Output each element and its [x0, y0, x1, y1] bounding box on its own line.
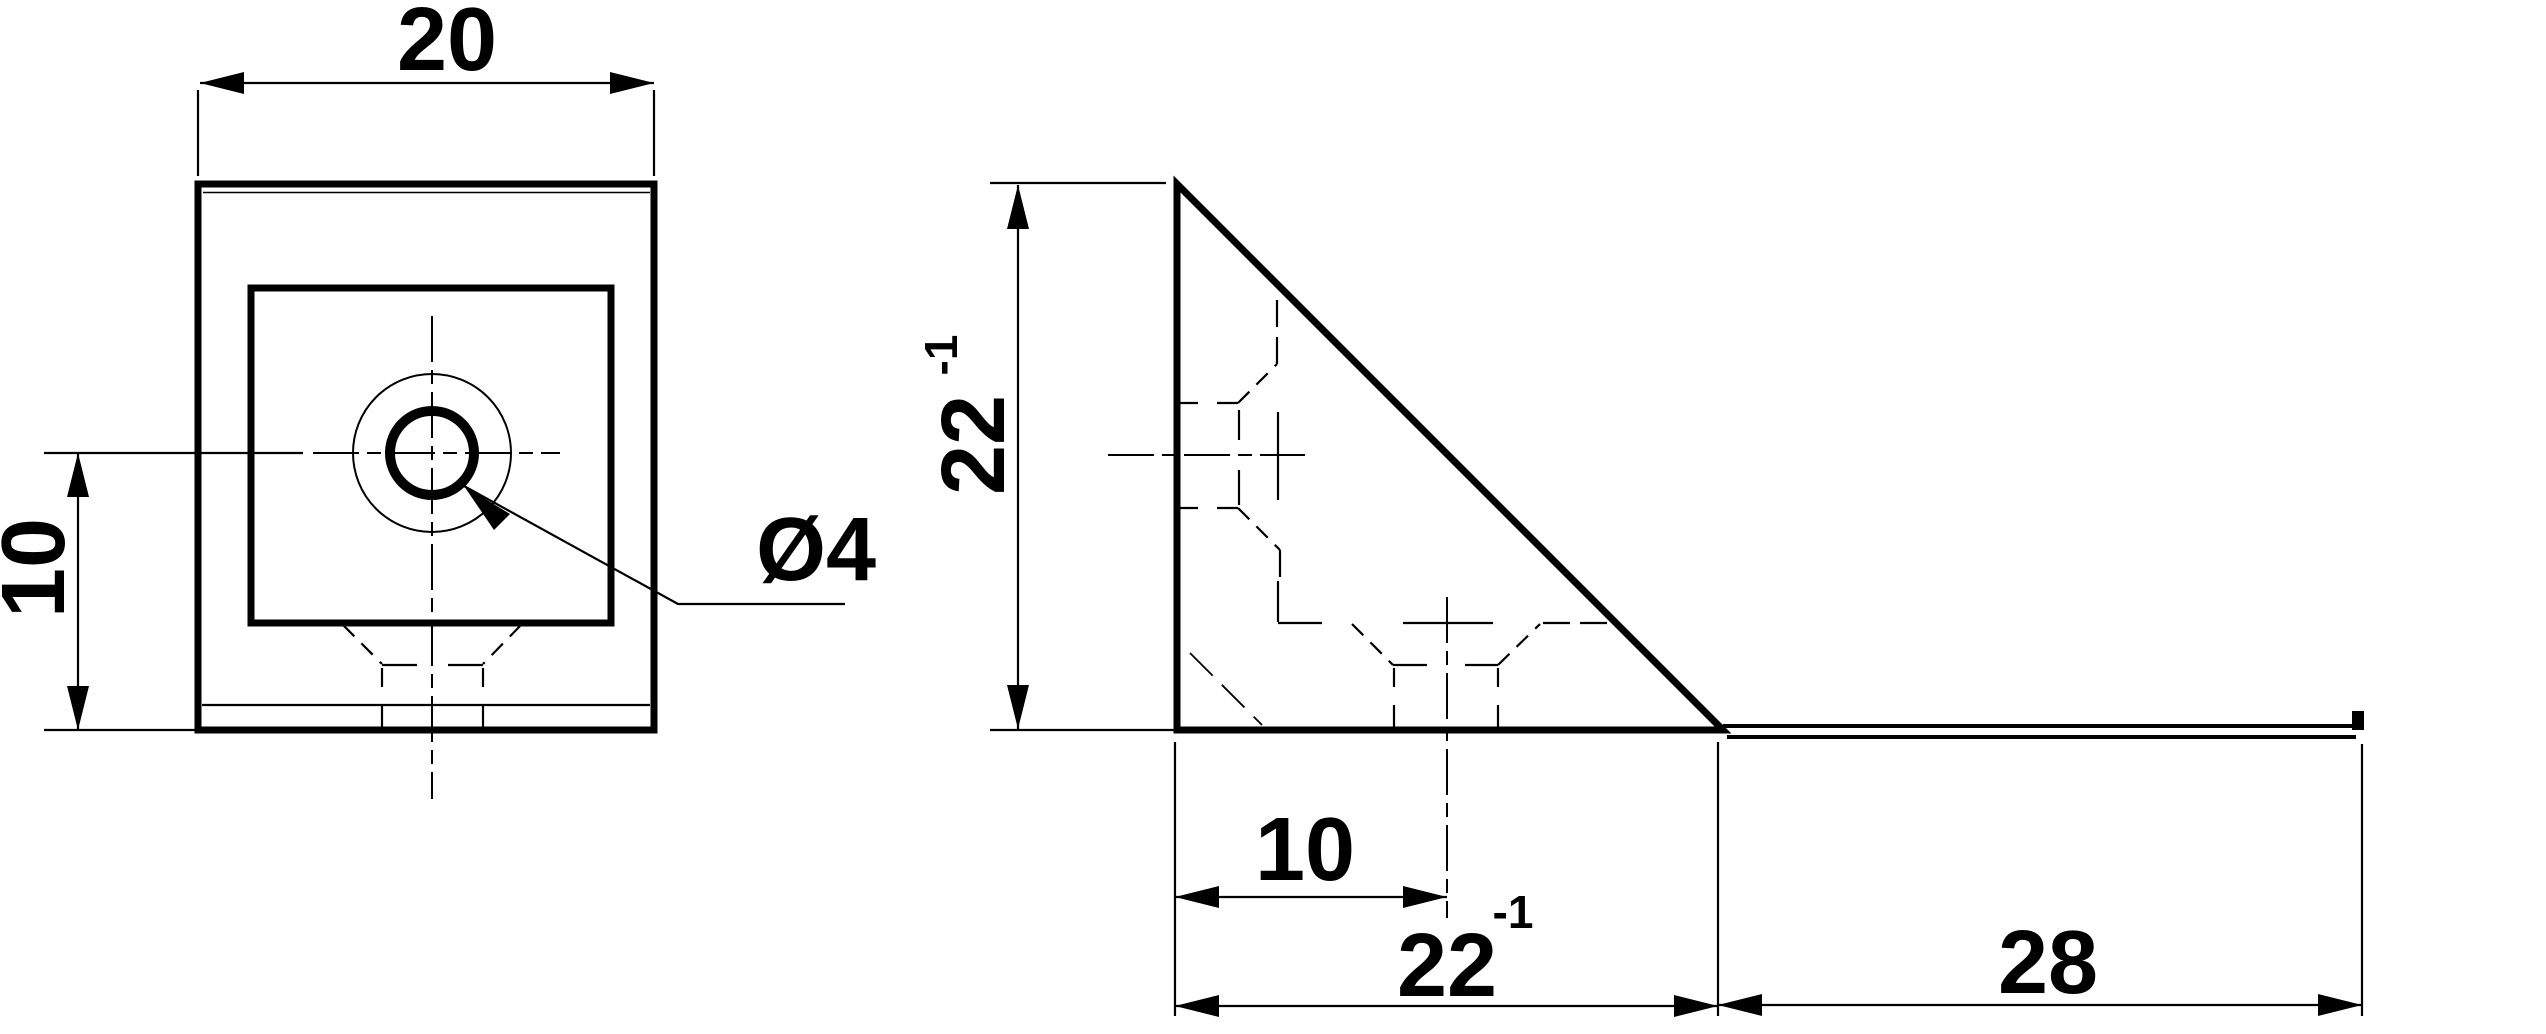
dimension-text-base: 22 [1397, 916, 1497, 1016]
hidden-diag [1238, 364, 1277, 403]
hidden-diag [1238, 508, 1280, 550]
arrowhead-down [67, 686, 89, 730]
dimension-text-base-superscript: -1 [1493, 886, 1534, 938]
arrowhead-left [1175, 886, 1219, 908]
dimension-text-width: 20 [397, 0, 497, 90]
front-hole-offset-dimension: 10 [0, 453, 303, 730]
side-view: 22 -1 10 22 -1 [915, 183, 2364, 1017]
hidden-diagonal-right [483, 625, 521, 664]
corner-chamfer-line [1190, 653, 1262, 725]
dimension-text-height-superscript: -1 [915, 335, 967, 376]
front-outer-contour [198, 184, 654, 730]
front-view: 20 10 Ø4 [0, 0, 876, 799]
dimension-text-height: 22 [924, 395, 1024, 495]
strip-end-tab [2352, 711, 2364, 730]
technical-drawing-canvas: 20 10 Ø4 [0, 0, 2546, 1034]
arrowhead-up [1007, 185, 1029, 229]
dimension-text-extension: 28 [1998, 913, 2098, 1013]
front-width-dimension: 20 [198, 0, 654, 176]
dimension-text-hole-offset: 10 [1255, 800, 1355, 900]
side-height-dimension: 22 -1 [915, 183, 1174, 730]
dimension-text-hole-offset: 10 [0, 518, 84, 618]
arrowhead-right [1674, 995, 1718, 1017]
arrowhead-down [1007, 685, 1029, 729]
arrowhead-right [610, 72, 654, 94]
side-hidden-lines-upper [1178, 293, 1393, 665]
drawing-sheet: 20 10 Ø4 [0, 0, 2546, 1034]
arrowhead-right [2318, 994, 2362, 1016]
dimension-text-hole-diameter: Ø4 [756, 500, 876, 600]
arrowhead-left [200, 72, 244, 94]
side-hidden-lines-lower [1190, 623, 1612, 727]
arrowhead-right [1403, 886, 1447, 908]
arrowhead-left [1718, 994, 1762, 1016]
hidden-diag [1352, 624, 1393, 665]
arrowhead-up [67, 453, 89, 497]
side-bottom-dimensions: 10 22 -1 28 [1175, 742, 2362, 1017]
front-hole-diameter-callout: Ø4 [464, 486, 876, 604]
arrowhead-left [1175, 995, 1219, 1017]
side-triangle-contour [1177, 184, 1723, 730]
hidden-diagonal-left [343, 625, 382, 664]
hidden-diag [1498, 624, 1540, 665]
